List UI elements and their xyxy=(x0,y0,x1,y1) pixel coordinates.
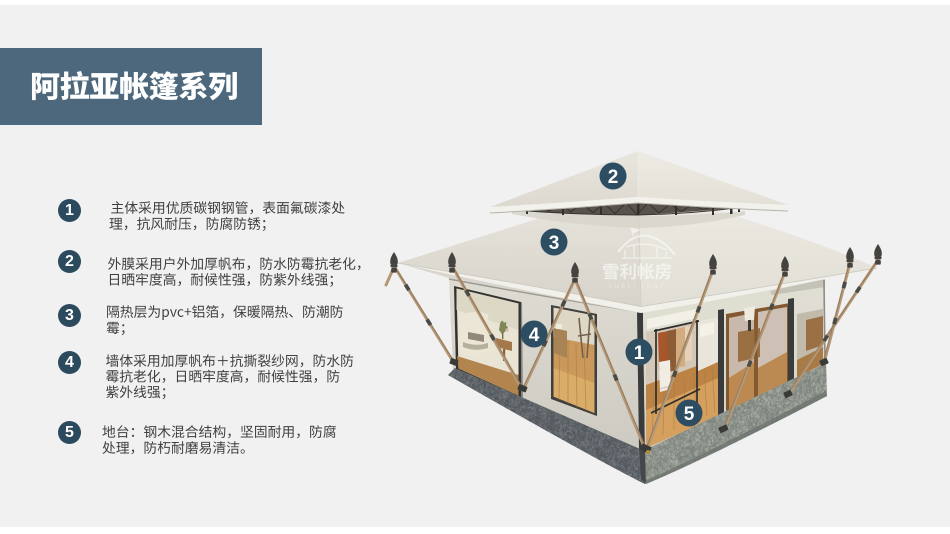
svg-text:2: 2 xyxy=(608,167,619,188)
svg-text:3: 3 xyxy=(549,233,560,254)
svg-text:XUELI TENT: XUELI TENT xyxy=(608,283,665,290)
svg-text:4: 4 xyxy=(529,325,540,346)
svg-text:5: 5 xyxy=(684,404,695,425)
svg-text:1: 1 xyxy=(634,343,645,364)
